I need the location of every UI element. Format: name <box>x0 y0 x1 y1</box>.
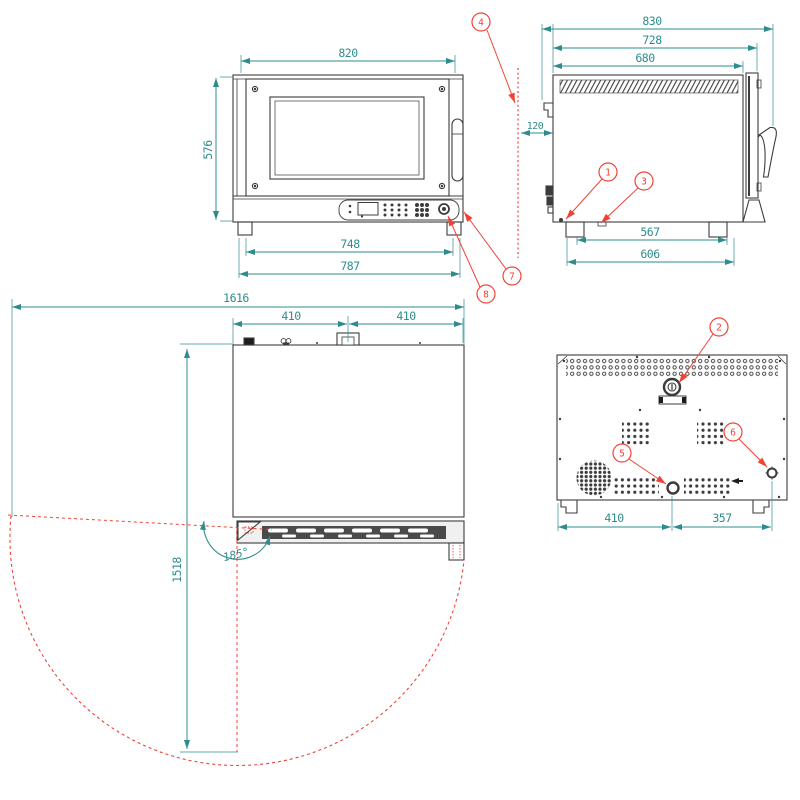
svg-text:8: 8 <box>483 290 489 301</box>
callout-1: 1 <box>599 163 617 181</box>
svg-text:3: 3 <box>641 177 647 188</box>
mid-vent-left <box>622 420 650 445</box>
svg-text:6: 6 <box>730 428 736 439</box>
callout-3: 3 <box>635 172 653 190</box>
callout-5: 5 <box>613 444 631 462</box>
callout-8: 8 <box>477 285 495 303</box>
back-view <box>557 355 787 513</box>
rear-bracket <box>544 103 553 117</box>
top-view <box>233 333 464 560</box>
callout-2: 2 <box>710 318 728 336</box>
side-handle-icon <box>759 127 776 177</box>
side-foot-right <box>709 222 727 237</box>
bottom-vent-right <box>684 477 730 496</box>
callout-7: 7 <box>503 267 521 285</box>
svg-text:5: 5 <box>619 449 625 460</box>
dim-top-clearance-width: 1616 <box>223 291 249 305</box>
side-foot-left <box>566 222 584 237</box>
dim-top-swing-clearance: 1518 <box>170 557 184 583</box>
dim-side-feet-outer: 606 <box>640 247 660 261</box>
dim-side-feet-inner: 567 <box>640 225 660 239</box>
dim-wall-clearance: 120 <box>527 121 544 132</box>
dim-front-feet-outer: 787 <box>340 259 360 273</box>
rear-connector <box>546 186 553 195</box>
open-door-band <box>237 521 464 560</box>
side-body <box>553 75 743 222</box>
front-foot-left <box>238 222 252 235</box>
front-view <box>233 75 463 235</box>
dim-front-height: 576 <box>201 140 215 160</box>
back-foot-left <box>561 500 577 513</box>
dim-back-left: 410 <box>604 511 624 525</box>
dim-top-right-half: 410 <box>396 309 416 323</box>
callout-4: 4 <box>472 13 490 31</box>
dim-front-feet-inner: 748 <box>340 237 360 251</box>
bottom-vent-left <box>613 477 659 496</box>
svg-text:7: 7 <box>509 272 515 283</box>
door-latch-block <box>449 543 464 560</box>
svg-text:1: 1 <box>605 168 611 179</box>
rear-fitting <box>244 338 254 345</box>
vent-hatch-icon <box>560 80 738 93</box>
drawing-svg: 820 576 748 787 <box>0 0 800 800</box>
valve-icon <box>281 339 291 345</box>
dim-side-door: 728 <box>642 33 662 47</box>
door-drip-guide <box>743 200 765 222</box>
side-view <box>544 73 776 237</box>
mid-vent-right <box>697 420 725 445</box>
svg-text:2: 2 <box>716 323 722 334</box>
svg-text:4: 4 <box>478 18 484 29</box>
side-door <box>746 73 758 198</box>
dim-back-right: 357 <box>712 511 732 525</box>
top-body <box>233 345 464 517</box>
dim-door-angle: 185° <box>222 545 251 564</box>
dim-side-overall: 830 <box>642 14 662 28</box>
back-foot-right <box>753 500 769 513</box>
callout-6: 6 <box>724 423 742 441</box>
leveling-bolt <box>559 218 563 222</box>
dim-front-width: 820 <box>338 46 358 60</box>
fan-vent-cluster <box>577 461 612 496</box>
dim-side-body: 680 <box>635 51 655 65</box>
oven-technical-drawing: 820 576 748 787 <box>0 0 800 800</box>
top-perforations <box>566 357 778 377</box>
dim-top-left-half: 410 <box>281 309 301 323</box>
